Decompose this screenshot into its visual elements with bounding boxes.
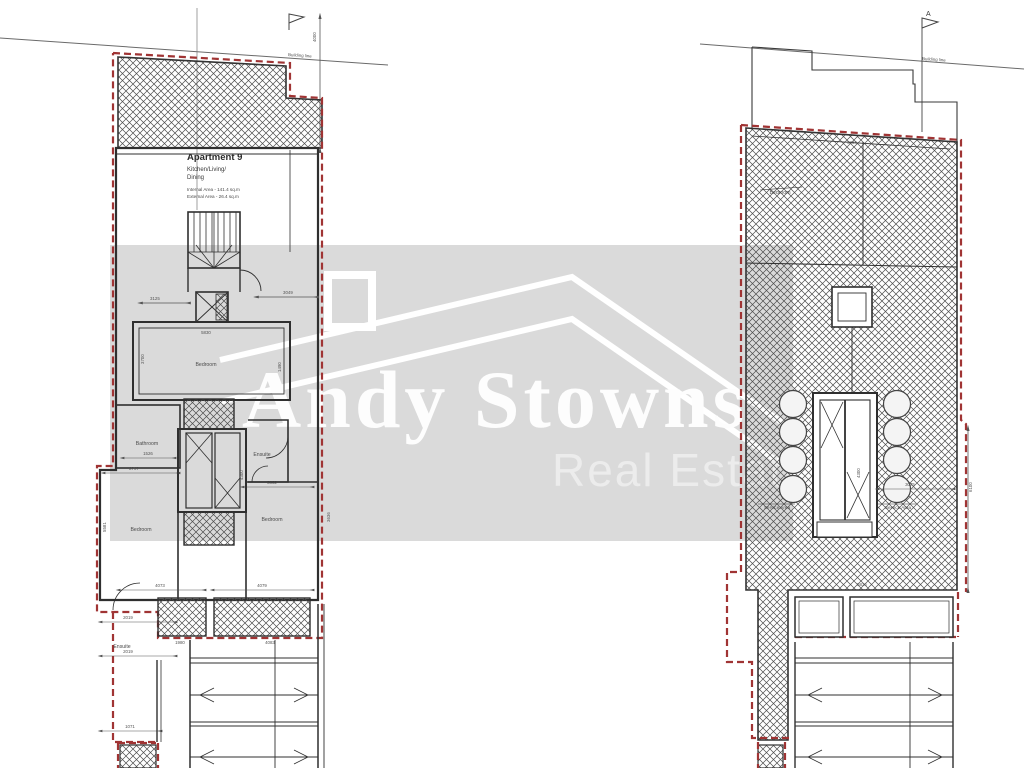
dim-6100: 6100 <box>968 482 973 492</box>
dim-5830: 5830 <box>201 330 211 335</box>
balcony-hatch-right <box>214 598 310 636</box>
door-swing-arc <box>252 466 268 482</box>
door-swing-arc <box>113 583 140 610</box>
dim-4300: 4300 <box>239 470 244 480</box>
ensuite-upper: Ensuite 3662 <box>242 420 312 487</box>
roof-services-shaft: 4300 <box>813 393 877 537</box>
dim-5836: 5836 <box>857 582 867 587</box>
bedroom-right-label: Bedroom <box>261 517 282 523</box>
apartment-room-line2: Dining <box>187 175 204 181</box>
right-building-line <box>700 44 1024 69</box>
door-swing-arc <box>240 270 261 291</box>
left-floor-plan: Building line 4000 Apartment 9 Kitchen/L… <box>0 8 388 768</box>
lower-room-right <box>850 597 953 637</box>
bathroom: Bathroom 1526 2707 <box>103 405 180 473</box>
survey-flag-icon <box>289 14 304 23</box>
dim-3636: 3636 <box>326 512 331 522</box>
bottom-hatch-strip <box>120 745 156 768</box>
apartment-room-line1: Kitchen/Living/ <box>187 167 226 173</box>
dim-1980: 1980 <box>175 640 185 645</box>
apartment-title-block: Apartment 9 Kitchen/Living/ Dining Inter… <box>187 152 242 199</box>
dim-4079: 4079 <box>257 583 267 588</box>
dim-4000: 4000 <box>312 32 317 42</box>
roof-hatch-strip <box>758 745 783 768</box>
dim-1526: 1526 <box>143 451 153 456</box>
section-flag-icon <box>922 18 938 28</box>
external-area-label: External Area - 26.4 sq.m <box>187 194 239 199</box>
lower-room-left <box>795 597 843 637</box>
internal-area-label: Internal Area - 141.4 sq.m <box>187 187 240 192</box>
services-shaft: 4300 <box>178 399 246 545</box>
terrace-hatch-area <box>118 57 322 148</box>
elevator-shaft <box>196 292 228 322</box>
dim-5581: 5581 <box>102 522 107 532</box>
dim-3700: 3700 <box>140 354 145 364</box>
dim-2019a: 2019 <box>123 615 133 620</box>
dim-1490: 1490 <box>277 362 282 372</box>
roof-bedroom-label: Bedroom <box>769 190 790 196</box>
bathroom-label: Bathroom <box>136 441 159 447</box>
dim-5834: 5834 <box>847 140 857 145</box>
ensuite-upper-label: Ensuite <box>253 452 270 458</box>
bedroom-mid-label: Bedroom <box>195 362 216 368</box>
service-area-left-label: Service Area <box>764 505 790 510</box>
dim-3049: 3049 <box>283 290 293 295</box>
plan-drawing: Building line 4000 Apartment 9 Kitchen/L… <box>0 0 1024 768</box>
dim-3125: 3125 <box>150 296 160 301</box>
apartment-title: Apartment 9 <box>187 152 242 163</box>
dim-4073: 4073 <box>155 583 165 588</box>
section-marker-label: A <box>926 11 931 18</box>
dim-2019b: 2019 <box>123 649 133 654</box>
dim-3075: 3075 <box>905 482 915 487</box>
dim-2707: 2707 <box>129 466 139 471</box>
bedroom-mid: Bedroom 5830 3700 1490 <box>133 322 290 400</box>
service-area-right-label: Service Area <box>885 505 911 510</box>
dim-1071: 1071 <box>125 724 135 729</box>
bedroom-left-label: Bedroom <box>130 527 151 533</box>
dim-4300-right: 4300 <box>856 468 861 478</box>
left-building-line-label: Building line <box>288 52 313 59</box>
balcony-hatch-left <box>158 598 206 636</box>
floorplan-sheet: Andy Stowns Real Estate Building line 40… <box>0 0 1024 768</box>
right-adjacent-stair-area <box>795 642 953 768</box>
right-floor-plan: Building line A Bedroom 5834 <box>700 11 1024 768</box>
dim-4083: 4083 <box>265 640 275 645</box>
